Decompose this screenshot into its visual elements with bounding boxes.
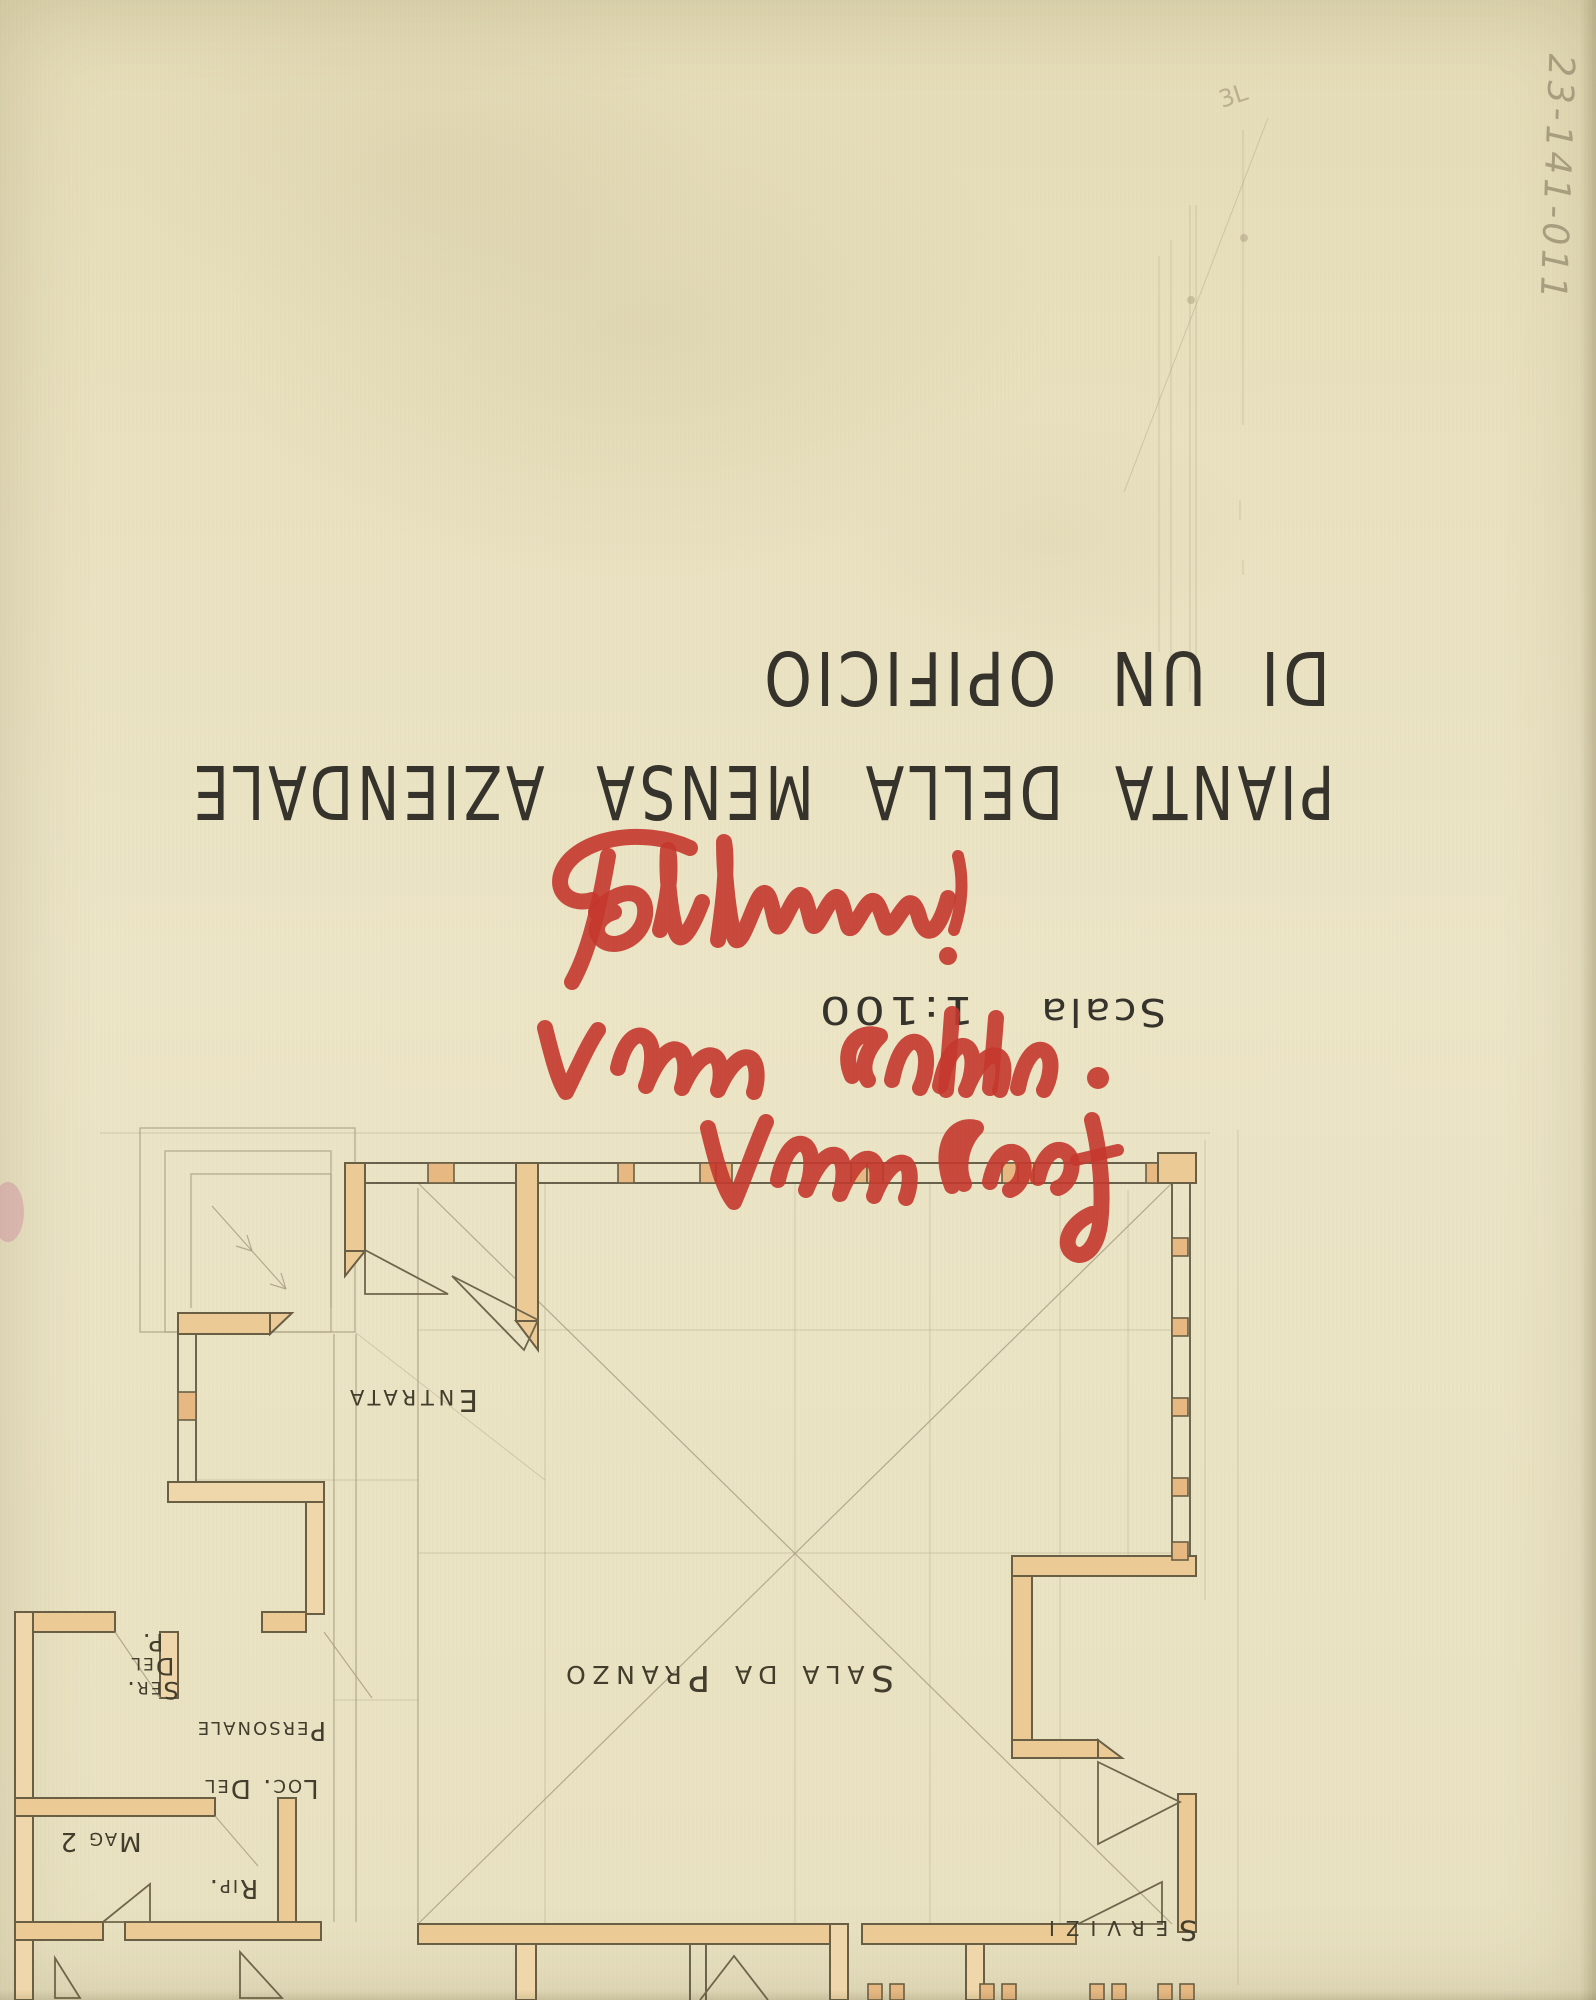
- svg-text:Loc. Del: Loc. Del: [203, 1773, 318, 1803]
- title-line1: PIANTA DELLA MENSA AZIENDALE: [190, 748, 1335, 834]
- room-label-servizi: Servizi: [1047, 1914, 1197, 1947]
- scan-edge-shadow-right: [1580, 0, 1596, 2000]
- right-wall-mullions: [1172, 1238, 1188, 1560]
- walls: [15, 1153, 1196, 2000]
- title-block: DI UN OPIFICIO PIANTA DELLA MENSA AZIEND…: [190, 634, 1335, 1034]
- svg-text:Personale: Personale: [196, 1715, 326, 1745]
- pencil-sketch-mark: 3L: [1215, 78, 1251, 114]
- entrance-canopy: [140, 1128, 355, 1332]
- room-label-rip: Rip.: [208, 1873, 259, 1903]
- pencil-sketch: 3L: [1124, 78, 1268, 692]
- pink-smudge: [0, 1182, 24, 1242]
- scanned-drawing-page: 3L 23-141-011 DI UN OPIFICIO PIANTA DELL…: [0, 0, 1596, 2000]
- scale-label: Scala: [1038, 990, 1166, 1034]
- drawing-svg: 3L 23-141-011 DI UN OPIFICIO PIANTA DELL…: [0, 0, 1596, 2000]
- red-marker-annotations: [545, 837, 1118, 1255]
- room-label-loc-del-personale: Loc. Del Personale: [196, 1715, 326, 1803]
- catalog-number: 23-141-011: [1532, 53, 1582, 303]
- red-signature: [560, 837, 961, 982]
- scan-edge-shadow-bottom: [0, 1990, 1596, 2000]
- floor-plan: Entrata Sala da Pranzo Ser. Del P. Loc. …: [15, 1128, 1238, 2000]
- red-line-3: [708, 1120, 1118, 1255]
- room-label-entrata: Entrata: [348, 1382, 478, 1417]
- entrance-arrow: [212, 1206, 286, 1289]
- room-label-sala-da-pranzo: Sala da Pranzo: [564, 1657, 894, 1698]
- title-line2: DI UN OPIFICIO: [760, 634, 1330, 720]
- svg-text:P.: P.: [141, 1628, 163, 1656]
- room-label-mag2: Mag 2: [58, 1826, 141, 1856]
